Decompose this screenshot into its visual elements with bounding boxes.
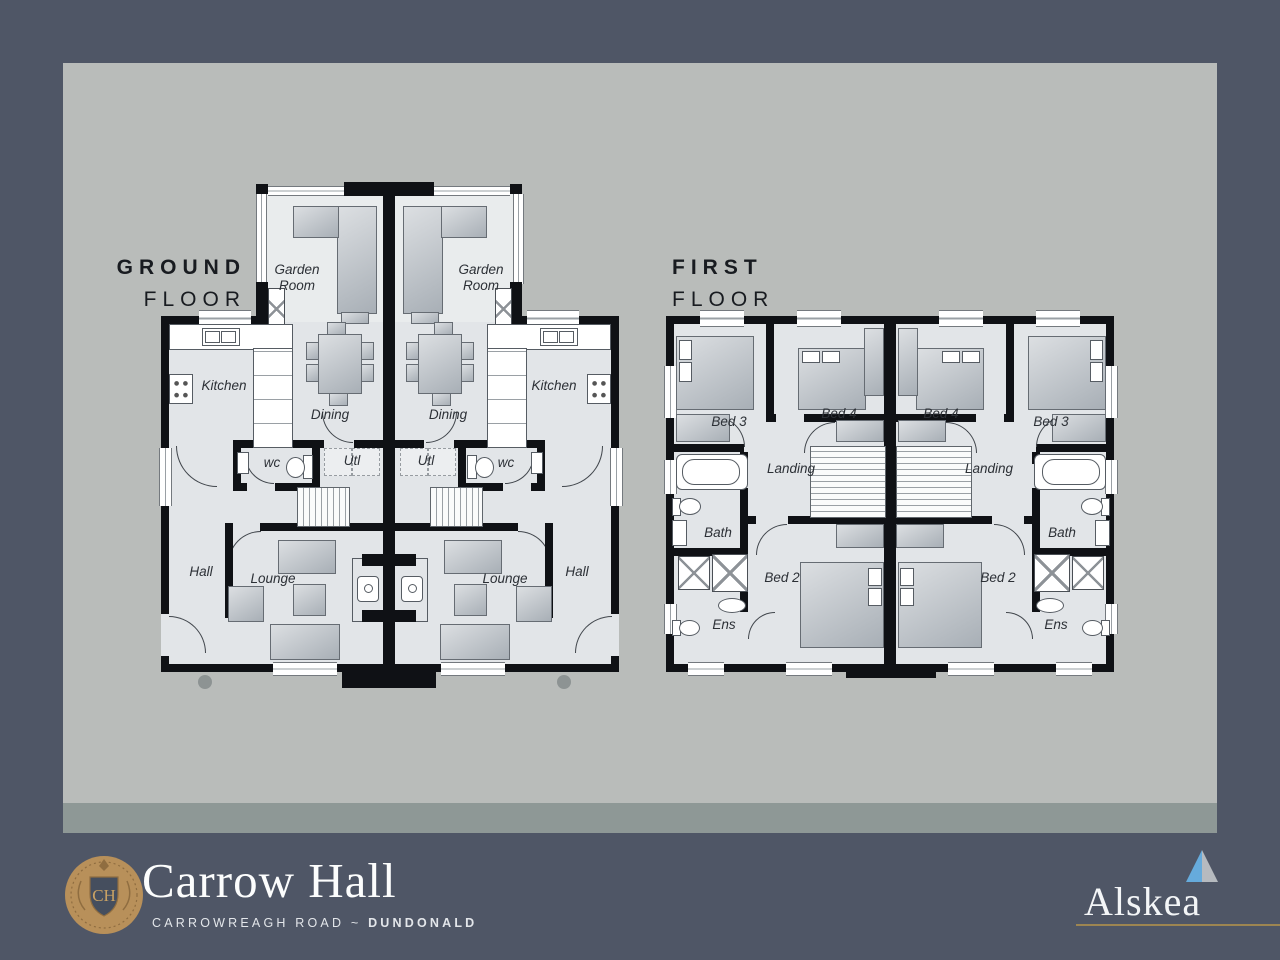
wardrobe bbox=[898, 420, 946, 442]
development-name: Carrow Hall bbox=[142, 852, 397, 909]
room-label-bed2-right: Bed 2 bbox=[980, 570, 1016, 586]
wall bbox=[233, 483, 247, 491]
sink-bowl bbox=[221, 331, 236, 343]
stove-flue bbox=[408, 584, 417, 593]
coffee-table bbox=[454, 584, 487, 616]
toilet bbox=[1081, 498, 1103, 515]
wardrobe bbox=[864, 328, 884, 396]
window bbox=[797, 310, 841, 327]
sofa bbox=[403, 206, 443, 314]
basin bbox=[531, 452, 543, 474]
sofa bbox=[440, 624, 510, 660]
pillow bbox=[679, 340, 692, 360]
chair bbox=[432, 393, 451, 406]
sink-bowl bbox=[205, 331, 220, 343]
development-address: CARROWREAGH ROAD ~ DUNDONALD bbox=[152, 916, 477, 930]
room-label-kitchen-left: Kitchen bbox=[195, 378, 253, 394]
staircase bbox=[810, 446, 886, 518]
pillow bbox=[868, 588, 882, 606]
room-label-bath-right: Bath bbox=[1042, 525, 1082, 541]
room-label-bed4-right: Bed 4 bbox=[912, 406, 970, 422]
wall bbox=[766, 414, 776, 422]
hob bbox=[587, 374, 611, 404]
chair bbox=[361, 342, 374, 360]
armchair bbox=[228, 586, 264, 622]
builder-name: Alskea bbox=[1084, 878, 1201, 925]
toilet bbox=[286, 457, 305, 478]
sink-bowl bbox=[543, 331, 558, 343]
chair bbox=[361, 364, 374, 382]
window bbox=[1105, 366, 1118, 418]
pillow bbox=[802, 351, 820, 363]
wall bbox=[395, 440, 424, 448]
wardrobe bbox=[898, 328, 918, 396]
wall bbox=[256, 184, 268, 194]
shower bbox=[1072, 556, 1104, 590]
wall bbox=[510, 184, 522, 194]
crest-monogram: CH bbox=[92, 886, 116, 905]
toilet bbox=[679, 498, 701, 515]
address-separator: ~ bbox=[351, 916, 362, 930]
front-door-opening bbox=[161, 614, 169, 656]
wall bbox=[748, 516, 756, 524]
crest-logo-graphic: CH bbox=[62, 850, 146, 938]
room-label-dining-right: Dining bbox=[419, 407, 477, 423]
shower bbox=[678, 556, 710, 590]
wardrobe bbox=[836, 524, 884, 548]
wall bbox=[1004, 414, 1014, 422]
toilet bbox=[679, 620, 700, 636]
dining-table bbox=[318, 334, 362, 394]
room-label-hall-right: Hall bbox=[551, 564, 603, 580]
wall bbox=[312, 440, 320, 483]
staircase bbox=[297, 487, 350, 527]
kitchen-unit bbox=[253, 348, 293, 448]
chair bbox=[461, 364, 474, 382]
room-label-bed4-left: Bed 4 bbox=[810, 406, 868, 422]
sofa bbox=[270, 624, 340, 660]
room-label-garden-room-right: Garden Room bbox=[445, 262, 517, 294]
room-label-lounge-left: Lounge bbox=[242, 571, 304, 587]
first-floor-title: FIRST FLOOR bbox=[672, 252, 838, 315]
wardrobe bbox=[896, 524, 944, 548]
room-label-lounge-right: Lounge bbox=[474, 571, 536, 587]
room-label-bath-left: Bath bbox=[698, 525, 738, 541]
window bbox=[939, 310, 983, 327]
lounge-window bbox=[273, 662, 337, 676]
sofa bbox=[278, 540, 336, 574]
room-label-landing-right: Landing bbox=[961, 461, 1017, 477]
ground-floor-title-line1: GROUND bbox=[80, 252, 246, 284]
wall bbox=[740, 488, 748, 548]
room-label-dining-left: Dining bbox=[301, 407, 359, 423]
pillow bbox=[962, 351, 980, 363]
window bbox=[268, 186, 344, 196]
room-label-utility-right: Utl bbox=[409, 453, 443, 469]
sink-bowl bbox=[559, 331, 574, 343]
room-label-bed3-left: Bed 3 bbox=[700, 414, 758, 430]
wall bbox=[1032, 488, 1040, 548]
toilet bbox=[1082, 620, 1103, 636]
wall bbox=[766, 322, 774, 414]
pillow bbox=[900, 568, 914, 586]
wardrobe bbox=[836, 420, 884, 442]
room-label-garden-room-left: Garden Room bbox=[261, 262, 333, 294]
window bbox=[948, 662, 994, 676]
marker-dot bbox=[557, 675, 571, 689]
window bbox=[688, 662, 724, 676]
chair bbox=[406, 342, 419, 360]
chair bbox=[306, 364, 319, 382]
alskea-underline bbox=[1076, 924, 1280, 926]
bath-tub-inner bbox=[1042, 459, 1100, 485]
basin bbox=[1095, 520, 1110, 546]
room-label-kitchen-right: Kitchen bbox=[525, 378, 583, 394]
chair bbox=[434, 322, 453, 335]
porch-block bbox=[846, 664, 936, 678]
chair bbox=[461, 342, 474, 360]
wall bbox=[531, 483, 545, 491]
armchair bbox=[516, 586, 552, 622]
shower bbox=[1034, 554, 1070, 592]
chair bbox=[329, 393, 348, 406]
room-label-hall-left: Hall bbox=[175, 564, 227, 580]
room-label-landing-left: Landing bbox=[763, 461, 819, 477]
room-label-bed3-right: Bed 3 bbox=[1022, 414, 1080, 430]
porch-block bbox=[342, 664, 436, 688]
pillow bbox=[1090, 362, 1103, 382]
lounge-window bbox=[441, 662, 505, 676]
chair bbox=[327, 322, 346, 335]
sofa bbox=[337, 206, 377, 314]
ground-floor-title: GROUND FLOOR bbox=[80, 252, 246, 315]
basin bbox=[237, 452, 249, 474]
room-label-ens-left: Ens bbox=[704, 617, 744, 633]
window bbox=[1105, 460, 1118, 494]
staircase bbox=[430, 487, 483, 527]
wall bbox=[458, 440, 466, 483]
bath-tub-inner bbox=[682, 459, 740, 485]
kitchen-unit bbox=[487, 348, 527, 448]
hall-window bbox=[159, 448, 172, 506]
shower bbox=[712, 554, 748, 592]
sofa bbox=[444, 540, 502, 574]
window bbox=[434, 186, 510, 196]
pillow bbox=[1090, 340, 1103, 360]
window bbox=[700, 310, 744, 327]
coffee-table bbox=[293, 584, 326, 616]
room-label-ens-right: Ens bbox=[1036, 617, 1076, 633]
first-floor-title-line1: FIRST bbox=[672, 252, 838, 284]
sofa bbox=[293, 206, 339, 238]
marker-dot bbox=[198, 675, 212, 689]
room-label-bed2-left: Bed 2 bbox=[764, 570, 800, 586]
pillow bbox=[822, 351, 840, 363]
room-label-wc-left: wc bbox=[257, 455, 287, 471]
wall bbox=[1024, 516, 1032, 524]
room-label-wc-right: wc bbox=[491, 455, 521, 471]
hall-window bbox=[610, 448, 623, 506]
window bbox=[1056, 662, 1092, 676]
wall bbox=[1006, 322, 1014, 414]
fireplace-block bbox=[362, 554, 416, 566]
pillow bbox=[942, 351, 960, 363]
room-label-utility-left: Utl bbox=[335, 453, 369, 469]
crest-logo: CH bbox=[62, 850, 146, 938]
address-town: DUNDONALD bbox=[368, 916, 477, 930]
address-road: CARROWREAGH ROAD bbox=[152, 916, 344, 930]
chair bbox=[406, 364, 419, 382]
fireplace-block bbox=[362, 610, 416, 622]
basin bbox=[1036, 598, 1064, 613]
basin bbox=[718, 598, 746, 613]
pillow bbox=[679, 362, 692, 382]
pillow bbox=[900, 588, 914, 606]
front-door-opening bbox=[611, 614, 619, 656]
basin bbox=[672, 520, 687, 546]
plan-panel-shadow-strip bbox=[63, 803, 1217, 833]
chair bbox=[306, 342, 319, 360]
staircase bbox=[896, 446, 972, 518]
wall bbox=[354, 440, 383, 448]
window bbox=[786, 662, 832, 676]
stove-flue bbox=[364, 584, 373, 593]
dining-table bbox=[418, 334, 462, 394]
pillow bbox=[868, 568, 882, 586]
hob bbox=[169, 374, 193, 404]
window bbox=[1036, 310, 1080, 327]
sofa bbox=[441, 206, 487, 238]
